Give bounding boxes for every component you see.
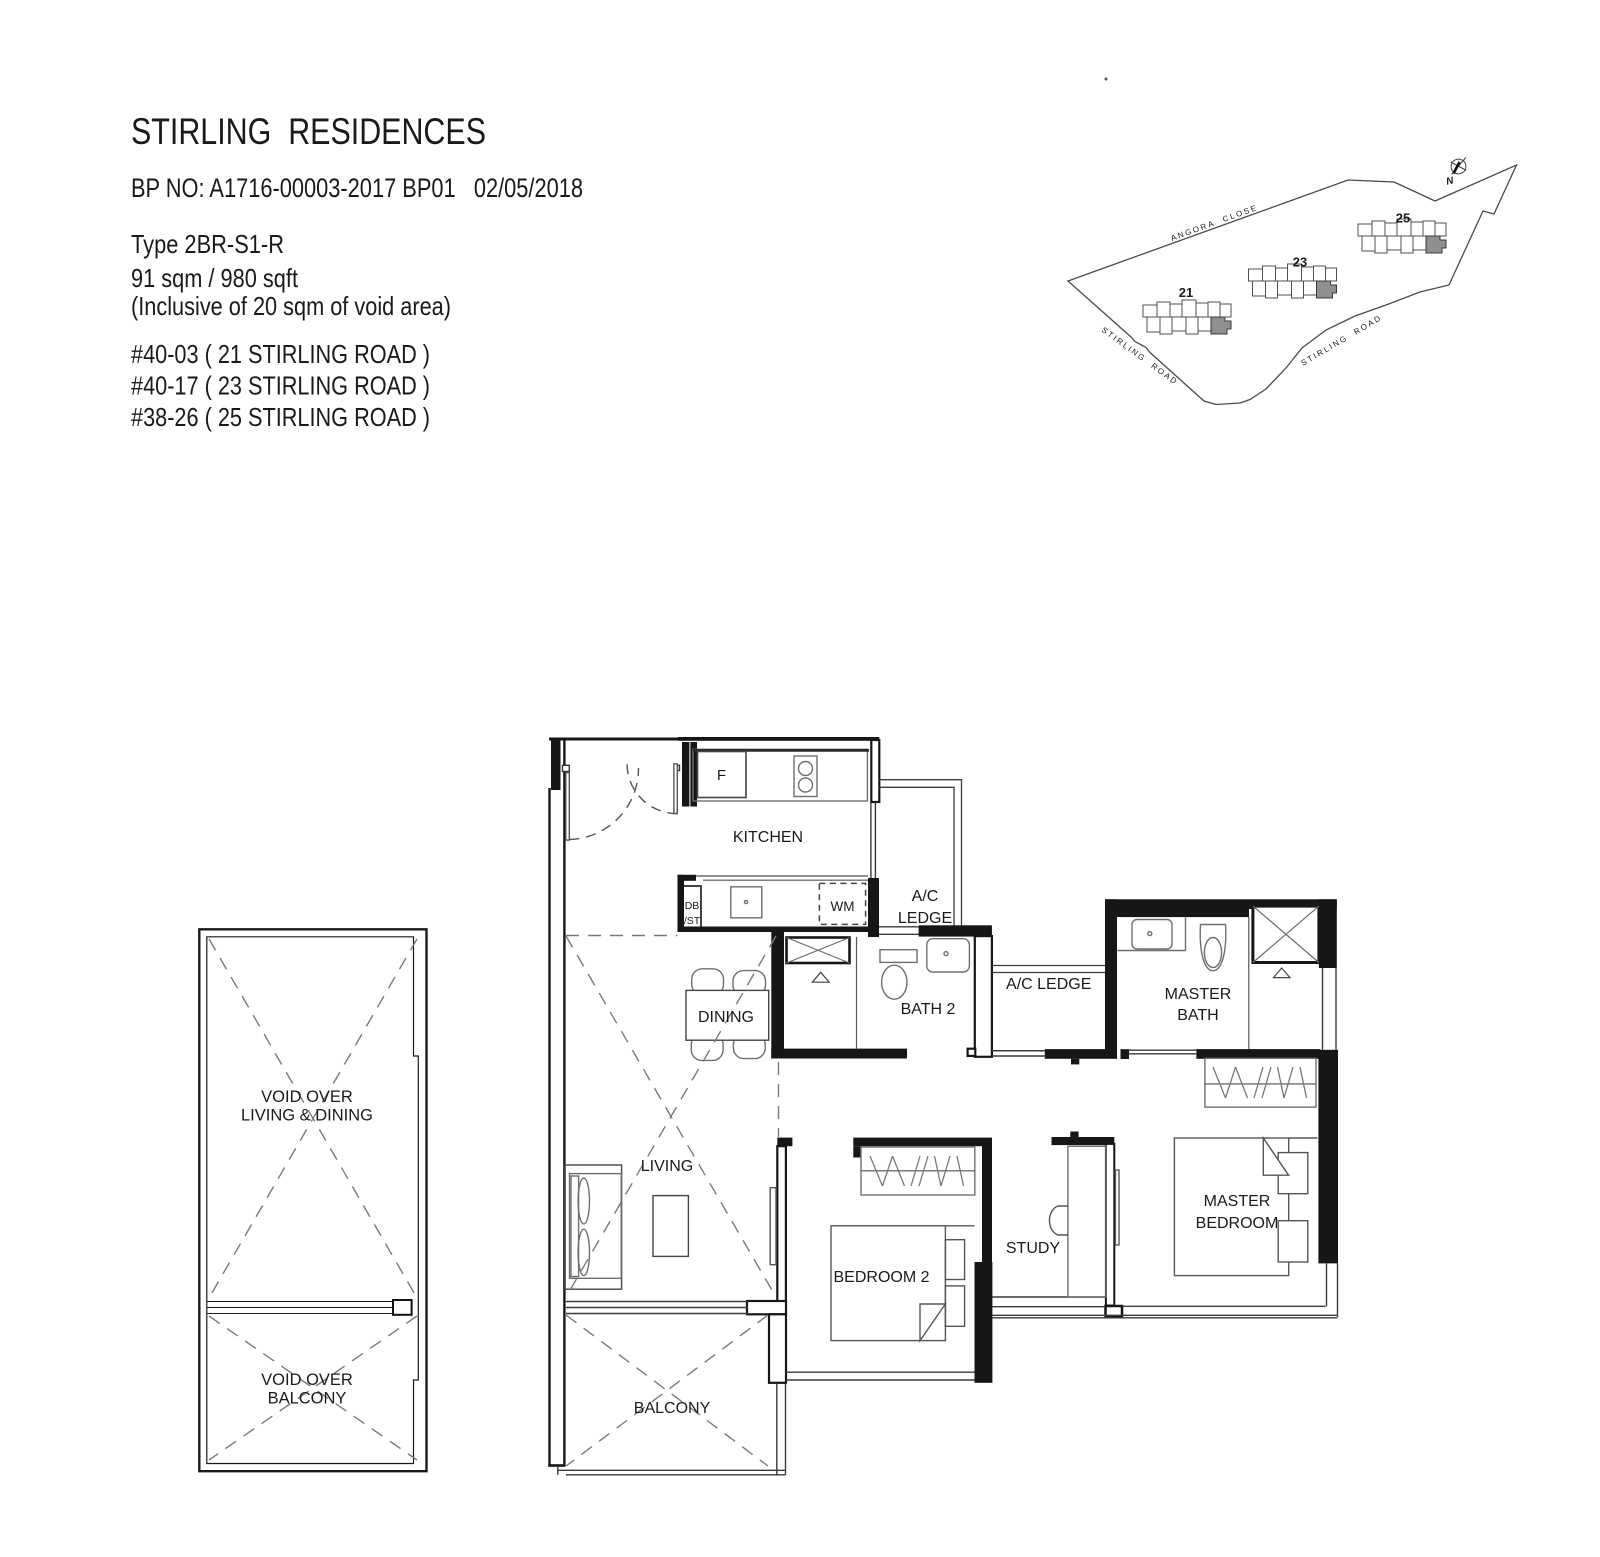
- svg-text:STIRLING RESIDENCES: STIRLING RESIDENCES: [131, 111, 486, 152]
- svg-text:VOID OVER: VOID OVER: [261, 1088, 353, 1106]
- svg-text:WM: WM: [831, 899, 855, 914]
- svg-text:(Inclusive of 20 sqm of void a: (Inclusive of 20 sqm of void area): [131, 291, 451, 321]
- svg-text:BATH: BATH: [1177, 1007, 1218, 1024]
- svg-text:A/C: A/C: [912, 888, 939, 905]
- svg-text:VOID OVER: VOID OVER: [261, 1371, 353, 1389]
- svg-text:LIVING: LIVING: [641, 1158, 693, 1175]
- svg-text:BALCONY: BALCONY: [634, 1400, 711, 1417]
- svg-text:F: F: [717, 767, 726, 784]
- svg-text:21: 21: [1179, 285, 1193, 300]
- svg-text:BATH 2: BATH 2: [901, 1001, 956, 1018]
- svg-text:BP NO: A1716-00003-2017 BP01: BP NO: A1716-00003-2017 BP01 02/05/2018: [131, 173, 583, 203]
- svg-text:DB: DB: [685, 900, 700, 912]
- svg-text:KITCHEN: KITCHEN: [733, 829, 803, 846]
- svg-text:BEDROOM: BEDROOM: [1196, 1215, 1279, 1232]
- svg-text:DINING: DINING: [698, 1009, 754, 1026]
- svg-text:91 sqm / 980 sqft: 91 sqm / 980 sqft: [131, 263, 299, 293]
- svg-text:/ST: /ST: [684, 915, 701, 927]
- svg-text:LIVING & DINING: LIVING & DINING: [241, 1107, 373, 1125]
- svg-text:MASTER: MASTER: [1204, 1193, 1271, 1210]
- svg-text:BEDROOM 2: BEDROOM 2: [833, 1269, 929, 1286]
- svg-text:MASTER: MASTER: [1165, 986, 1232, 1003]
- svg-text:#40-17 ( 23 STIRLING ROAD ): #40-17 ( 23 STIRLING ROAD ): [131, 371, 430, 401]
- svg-text:LEDGE: LEDGE: [898, 910, 952, 927]
- svg-text:#38-26 ( 25 STIRLING ROAD ): #38-26 ( 25 STIRLING ROAD ): [131, 402, 430, 432]
- svg-text:Type 2BR-S1-R: Type 2BR-S1-R: [131, 229, 284, 259]
- svg-text:23: 23: [1293, 255, 1307, 270]
- svg-text:25: 25: [1396, 211, 1410, 226]
- svg-text:#40-03 ( 21 STIRLING ROAD ): #40-03 ( 21 STIRLING ROAD ): [131, 339, 430, 369]
- svg-text:BALCONY: BALCONY: [268, 1390, 347, 1408]
- svg-text:A/C LEDGE: A/C LEDGE: [1006, 976, 1091, 993]
- svg-text:STUDY: STUDY: [1006, 1240, 1061, 1257]
